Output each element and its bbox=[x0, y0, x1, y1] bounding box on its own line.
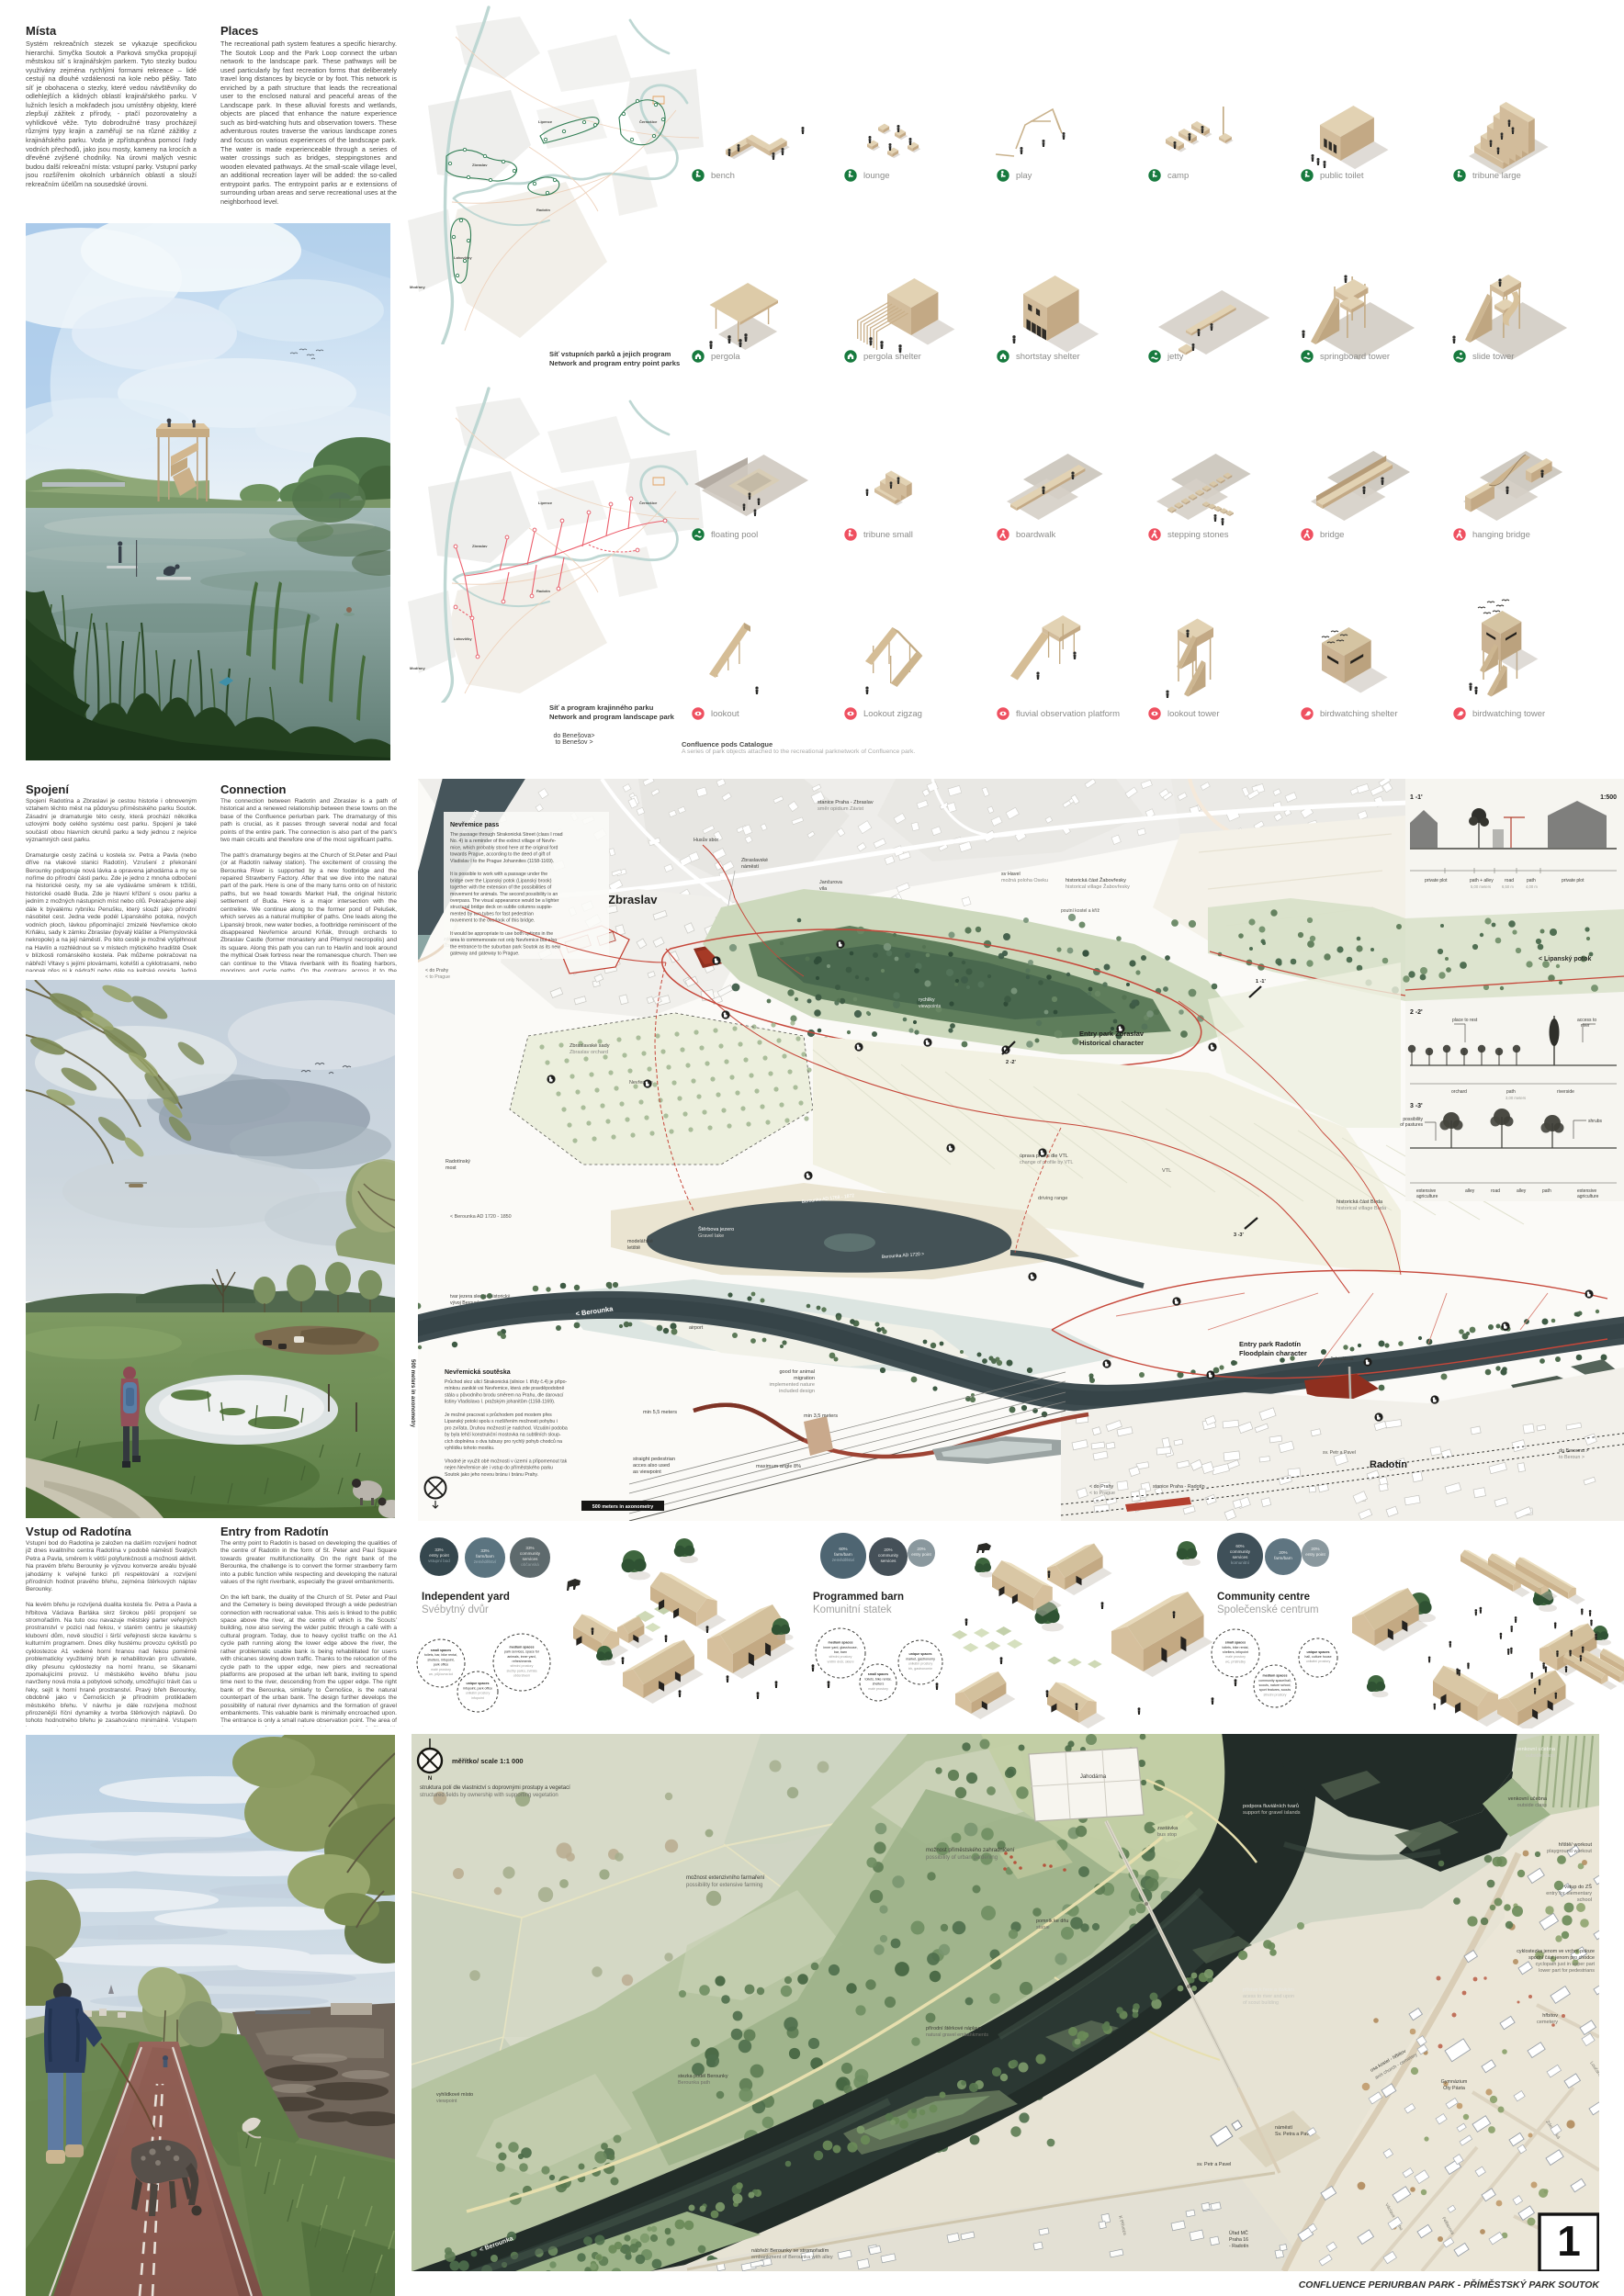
svg-text:pro zvířata. Druhou možností j: pro zvířata. Druhou možností je nadchod.… bbox=[445, 1425, 568, 1431]
svg-text:Je možné pracovat s průchodem: Je možné pracovat s průchodem pod mostem… bbox=[445, 1412, 552, 1418]
svg-text:No. 4) is a reminder of the ex: No. 4) is a reminder of the extinct vill… bbox=[450, 838, 557, 844]
svg-text:The passage through Strakonick: The passage through Strakonická Street (… bbox=[450, 832, 563, 838]
svg-text:Praha 16: Praha 16 bbox=[1229, 2237, 1248, 2243]
svg-text:Gravel lake: Gravel lake bbox=[698, 1233, 724, 1239]
svg-text:nejen Nevřemice ale i vstup do: nejen Nevřemice ale i vstup do příměstsk… bbox=[445, 1466, 553, 1471]
svg-text:min 3,5 meters: min 3,5 meters bbox=[804, 1413, 838, 1419]
svg-text:entry point: entry point bbox=[911, 1552, 931, 1557]
svg-text:acess to river and upon: acess to river and upon bbox=[1243, 1994, 1294, 1999]
svg-text:Komunitní statek: Komunitní statek bbox=[813, 1604, 892, 1615]
svg-text:change of profile by VTL: change of profile by VTL bbox=[1020, 1160, 1073, 1165]
svg-text:services: services bbox=[523, 1557, 539, 1561]
svg-text:malé prostory: malé prostory bbox=[431, 1668, 451, 1671]
svg-text:animals, inner yard,: animals, inner yard, bbox=[507, 1655, 536, 1659]
svg-text:road: road bbox=[1505, 878, 1514, 884]
svg-text:cyclopath just in upper part: cyclopath just in upper part bbox=[1536, 1962, 1596, 1967]
svg-text:implemented nature: implemented nature bbox=[770, 1382, 815, 1388]
svg-text:natural gravel embankments: natural gravel embankments bbox=[926, 2032, 988, 2038]
svg-text:birdwatching shelter: birdwatching shelter bbox=[1320, 709, 1398, 719]
svg-text:springboard tower: springboard tower bbox=[1320, 352, 1390, 362]
svg-text:5,00 meters: 5,00 meters bbox=[1471, 884, 1491, 889]
svg-text:2 -2': 2 -2' bbox=[1006, 1060, 1016, 1065]
svg-text:community: community bbox=[878, 1553, 899, 1558]
svg-text:outside class: outside class bbox=[1526, 1753, 1556, 1759]
svg-text:Úřad MČ: Úřad MČ bbox=[1229, 2230, 1248, 2236]
svg-text:pergola shelter: pergola shelter bbox=[863, 352, 921, 362]
svg-text:20%: 20% bbox=[1279, 1550, 1287, 1555]
svg-text:Entry park Zbraslav: Entry park Zbraslav bbox=[1079, 1030, 1145, 1038]
svg-text:možnost extenzivního farmaření: možnost extenzivního farmaření bbox=[686, 1875, 765, 1881]
svg-text:sv. Petr a Pavel: sv. Petr a Pavel bbox=[1323, 1450, 1356, 1456]
svg-text:možnost příměstského zahradnič: možnost příměstského zahradničení bbox=[926, 1848, 1015, 1853]
svg-text:private plot: private plot bbox=[1425, 878, 1448, 884]
svg-text:movement for animals. The seco: movement for animals. The second possibi… bbox=[450, 892, 558, 897]
svg-text:přírodní štěrkové náplavy: přírodní štěrkové náplavy bbox=[926, 2026, 982, 2032]
svg-text:Soutok jako jeho novou bránu i: Soutok jako jeho novou bránu i bránu Pra… bbox=[445, 1472, 538, 1478]
svg-text:riverside: riverside bbox=[1557, 1089, 1574, 1095]
svg-text:historical village Žabovřesky: historical village Žabovřesky bbox=[1066, 883, 1130, 890]
svg-text:venkovní učebna: venkovní učebna bbox=[1508, 1796, 1548, 1802]
svg-text:path: path bbox=[1527, 878, 1536, 884]
svg-text:33%: 33% bbox=[480, 1548, 489, 1553]
svg-text:náměstí: náměstí bbox=[741, 864, 760, 870]
svg-text:driving range: driving range bbox=[1038, 1196, 1067, 1201]
svg-text:embankment of Berounka with al: embankment of Berounka with alley bbox=[751, 2255, 833, 2260]
svg-text:viewpoints: viewpoints bbox=[919, 1004, 942, 1009]
svg-text:Lipence: Lipence bbox=[538, 119, 553, 124]
svg-text:přístup k řece a lávkám: přístup k řece a lávkám bbox=[1243, 1987, 1294, 1993]
svg-text:Radotínský: Radotínský bbox=[445, 1159, 470, 1165]
svg-text:33%: 33% bbox=[434, 1548, 443, 1552]
svg-text:Jančurova: Jančurova bbox=[819, 880, 842, 885]
svg-text:stanice Praha - Radotín: stanice Praha - Radotín bbox=[1153, 1484, 1205, 1490]
svg-text:Společenské centrum: Společenské centrum bbox=[1217, 1604, 1319, 1615]
svg-text:mínkou zaniklé vsi Nevřemice,: mínkou zaniklé vsi Nevřemice, která zde … bbox=[445, 1386, 564, 1391]
svg-text:entry for elementary: entry for elementary bbox=[1546, 1891, 1592, 1896]
svg-text:< do Prahy: < do Prahy bbox=[425, 968, 449, 974]
svg-text:good for animal: good for animal bbox=[779, 1369, 815, 1375]
svg-text:unique spaces: unique spaces bbox=[467, 1682, 490, 1685]
svg-text:vstupní bod: vstupní bod bbox=[428, 1559, 450, 1563]
svg-text:It is possible to work with a: It is possible to work with a passage un… bbox=[450, 872, 547, 877]
svg-text:listiny Vladislava I. pražským: listiny Vladislava I. pražským johanitům… bbox=[445, 1399, 555, 1405]
svg-text:Černošice: Černošice bbox=[639, 119, 658, 124]
svg-text:zemědělství: zemědělství bbox=[474, 1559, 497, 1564]
svg-text:play: play bbox=[1016, 171, 1032, 181]
svg-text:20%: 20% bbox=[917, 1547, 925, 1551]
svg-text:20%: 20% bbox=[884, 1548, 892, 1552]
svg-text:Independent yard: Independent yard bbox=[422, 1592, 510, 1603]
svg-text:structured fields by ownership: structured fields by ownership with supp… bbox=[420, 1793, 558, 1798]
svg-text:community: community bbox=[1230, 1549, 1251, 1554]
svg-text:shrubs: shrubs bbox=[1588, 1119, 1603, 1124]
svg-text:services: services bbox=[1233, 1555, 1249, 1559]
svg-text:to Beroun >: to Beroun > bbox=[1559, 1455, 1585, 1460]
svg-text:toilets, bike rental,: toilets, bike rental, bbox=[865, 1677, 892, 1681]
svg-text:lounge: lounge bbox=[863, 171, 890, 181]
svg-text:pomník ke dňu: pomník ke dňu bbox=[1036, 1919, 1068, 1924]
svg-text:struktura polí dle vlastnictví: struktura polí dle vlastnictví s doprovn… bbox=[420, 1785, 570, 1791]
svg-text:historická část Žabovřesky: historická část Žabovřesky bbox=[1066, 876, 1126, 884]
svg-text:stála u původního brodu směrem: stála u původního brodu směrem na Prahu,… bbox=[445, 1391, 564, 1398]
svg-text:1: 1 bbox=[1557, 2217, 1581, 2265]
svg-text:alley: alley bbox=[1465, 1188, 1475, 1194]
svg-text:inner yard, glasshouse,: inner yard, glasshouse, bbox=[823, 1646, 857, 1649]
svg-text:20%: 20% bbox=[1311, 1547, 1319, 1551]
svg-text:toilets, bike rental,: toilets, bike rental, bbox=[1223, 1646, 1249, 1649]
svg-text:sv. Petr a Pavel: sv. Petr a Pavel bbox=[1197, 2162, 1231, 2167]
svg-text:toilets, bar, bike rental,: toilets, bar, bike rental, bbox=[424, 1653, 457, 1657]
svg-text:Zbraslav: Zbraslav bbox=[608, 893, 658, 906]
svg-text:historická část Buda: historická část Buda bbox=[1336, 1199, 1383, 1205]
svg-text:hřiště/ workout: hřiště/ workout bbox=[1559, 1842, 1593, 1848]
svg-text:It would be appropriate to use: It would be appropriate to use both opti… bbox=[450, 931, 553, 937]
svg-text:market, gastronomy: market, gastronomy bbox=[906, 1657, 935, 1660]
svg-text:Průchod skrz ulicí Strakonická: Průchod skrz ulicí Strakonická (silnice … bbox=[445, 1379, 567, 1385]
svg-text:Programmed barn: Programmed barn bbox=[813, 1592, 904, 1603]
svg-text:agriculture: agriculture bbox=[1416, 1194, 1438, 1199]
svg-text:Zbraslavské: Zbraslavské bbox=[741, 858, 768, 863]
svg-text:small spaces: small spaces bbox=[868, 1672, 888, 1676]
svg-text:podpora fluviálních tvarů: podpora fluviálních tvarů bbox=[1243, 1803, 1299, 1809]
svg-text:VTL: VTL bbox=[1162, 1168, 1171, 1174]
svg-text:tribune small: tribune small bbox=[863, 530, 913, 540]
svg-text:unikátní prostory: unikátní prostory bbox=[908, 1662, 933, 1666]
svg-text:cích doplněna o dva tubusy pro: cích doplněna o dva tubusy pro rychlý po… bbox=[445, 1438, 562, 1445]
svg-text:lower part for pedestrians: lower part for pedestrians bbox=[1539, 1968, 1595, 1974]
svg-text:4,00 m: 4,00 m bbox=[1526, 884, 1538, 889]
svg-text:vyhlídkové místo: vyhlídkové místo bbox=[436, 2092, 473, 2098]
svg-text:entry point: entry point bbox=[429, 1553, 449, 1558]
svg-text:area to commemorate not only N: area to commemorate not only Nevřemice b… bbox=[450, 938, 557, 943]
svg-text:Jahodárna: Jahodárna bbox=[1080, 1774, 1107, 1780]
svg-text:stanice Praha - Zbraslav: stanice Praha - Zbraslav bbox=[818, 800, 874, 805]
svg-text:orchard: orchard bbox=[1451, 1089, 1467, 1095]
svg-text:road: road bbox=[1491, 1188, 1500, 1194]
svg-text:wc, půjčovna kol: wc, půjčovna kol bbox=[429, 1672, 454, 1676]
svg-text:by byla lehčí konstrukční most: by byla lehčí konstrukční mostovka na su… bbox=[445, 1433, 561, 1438]
svg-text:path: path bbox=[1542, 1188, 1551, 1194]
svg-text:Community centre: Community centre bbox=[1217, 1592, 1310, 1603]
svg-text:sv Havel: sv Havel bbox=[1001, 872, 1021, 877]
svg-text:vstup do ZŠ: vstup do ZŠ bbox=[1564, 1884, 1592, 1890]
svg-text:Zbraslav orchard: Zbraslav orchard bbox=[570, 1050, 608, 1055]
svg-text:hall, culture house: hall, culture house bbox=[1304, 1655, 1331, 1659]
svg-text:nábřeží Berounky se stromořadí: nábřeží Berounky se stromořadím bbox=[751, 2248, 829, 2254]
svg-text:movement to the overlook of th: movement to the overlook of this bridge. bbox=[450, 918, 535, 924]
svg-text:maximum angle 8%: maximum angle 8% bbox=[756, 1464, 801, 1469]
svg-text:min 5,5 meters: min 5,5 meters bbox=[643, 1410, 677, 1415]
svg-text:střední prostory: střední prostory bbox=[511, 1664, 534, 1668]
svg-text:modelářské: modelářské bbox=[627, 1239, 653, 1244]
svg-text:Zbraslavské sady: Zbraslavské sady bbox=[570, 1043, 610, 1049]
svg-text:structural bridge deck on subt: structural bridge deck on subtle columns… bbox=[450, 905, 553, 910]
svg-text:viewpoint: viewpoint bbox=[436, 2099, 457, 2104]
svg-text:place to rest: place to rest bbox=[1452, 1018, 1478, 1023]
svg-text:Vladislav I to the Prague Joha: Vladislav I to the Prague Johannites (11… bbox=[450, 859, 554, 864]
svg-text:mented by two tubes for fast p: mented by two tubes for fast pedestrian bbox=[450, 911, 534, 917]
svg-text:farm/barn: farm/barn bbox=[476, 1554, 494, 1559]
svg-text:overpass. The visual appearanc: overpass. The visual appearance would be… bbox=[450, 898, 559, 904]
svg-text:Radotín: Radotín bbox=[1370, 1459, 1407, 1470]
svg-text:Berounka path: Berounka path bbox=[678, 2080, 710, 2086]
svg-text:vnitřní dvůr, sklení: vnitřní dvůr, sklení bbox=[828, 1660, 854, 1663]
svg-text:path: path bbox=[1506, 1089, 1516, 1095]
svg-text:3 -3': 3 -3' bbox=[1234, 1232, 1244, 1238]
svg-text:bus stop: bus stop bbox=[1157, 1832, 1177, 1838]
svg-text:Zbraslav: Zbraslav bbox=[472, 163, 488, 167]
svg-text:shelters, infopoint,: shelters, infopoint, bbox=[427, 1658, 454, 1661]
svg-text:Floodplain character: Floodplain character bbox=[1239, 1349, 1307, 1357]
svg-text:33%: 33% bbox=[525, 1546, 534, 1550]
svg-text:infopoint: infopoint bbox=[471, 1696, 484, 1700]
svg-text:Sv. Petra a Pavla: Sv. Petra a Pavla bbox=[1275, 2132, 1313, 2137]
svg-text:camp: camp bbox=[1167, 171, 1189, 181]
svg-text:floating pool: floating pool bbox=[711, 530, 758, 540]
svg-text:< do Prahy: < do Prahy bbox=[1089, 1484, 1114, 1490]
svg-text:rychlíky: rychlíky bbox=[919, 997, 935, 1003]
svg-text:birdwatching tower: birdwatching tower bbox=[1472, 709, 1545, 719]
svg-text:Štěrbova jezero: Štěrbova jezero bbox=[698, 1226, 734, 1232]
svg-text:agriculture: agriculture bbox=[1577, 1194, 1599, 1199]
svg-text:farm/barn: farm/barn bbox=[1274, 1556, 1292, 1560]
svg-text:infopoint, park office: infopoint, park office bbox=[463, 1686, 492, 1690]
svg-text:trh, gastronomie: trh, gastronomie bbox=[908, 1667, 932, 1671]
svg-text:bench: bench bbox=[711, 171, 735, 181]
svg-text:Nevřemická soutěska: Nevřemická soutěska bbox=[445, 1369, 511, 1376]
svg-text:support for gravel islands: support for gravel islands bbox=[1243, 1810, 1301, 1816]
svg-text:stepping stones: stepping stones bbox=[1167, 530, 1229, 540]
svg-text:medium spaces: medium spaces bbox=[510, 1645, 535, 1649]
svg-text:náměstí: náměstí bbox=[1275, 2125, 1293, 2131]
svg-text:6,50 m: 6,50 m bbox=[1502, 884, 1514, 889]
svg-text:bridge: bridge bbox=[1320, 530, 1344, 540]
svg-text:občerstvení: občerstvení bbox=[513, 1674, 531, 1678]
svg-text:school: school bbox=[1577, 1897, 1592, 1903]
svg-text:malé prostory: malé prostory bbox=[1225, 1655, 1246, 1659]
svg-text:bridge over the Lipanský potok: bridge over the Lipanský potok (Lipanský… bbox=[450, 878, 552, 884]
svg-text:hřbitov: hřbitov bbox=[1542, 2013, 1558, 2019]
svg-text:wc, přístřešky: wc, přístřešky bbox=[1225, 1660, 1246, 1663]
svg-text:60%: 60% bbox=[839, 1547, 847, 1551]
svg-text:towards Prague, according to t: towards Prague, according to the deed of… bbox=[450, 852, 551, 858]
svg-text:unique spaces: unique spaces bbox=[909, 1652, 932, 1656]
svg-text:community space/hall,: community space/hall, bbox=[1258, 1679, 1291, 1683]
svg-text:included design: included design bbox=[779, 1389, 815, 1394]
svg-text:Husův sbor: Husův sbor bbox=[694, 837, 718, 843]
svg-text:1:500: 1:500 bbox=[1600, 794, 1617, 801]
svg-text:statue: statue bbox=[1036, 1925, 1050, 1930]
svg-text:Jahodárna: Jahodárna bbox=[1330, 1356, 1353, 1362]
svg-text:together with the extension of: together with the extension of the possi… bbox=[450, 885, 552, 891]
svg-text:do Berouna >: do Berouna > bbox=[1559, 1448, 1589, 1454]
svg-text:small spaces: small spaces bbox=[431, 1649, 451, 1652]
svg-text:sport features, scouts: sport features, scouts bbox=[1259, 1688, 1291, 1692]
svg-text:služby parku, zvířata: služby parku, zvířata bbox=[507, 1669, 537, 1672]
svg-text:refreshments: refreshments bbox=[513, 1660, 532, 1663]
svg-text:Černošice: Černošice bbox=[639, 501, 658, 505]
svg-text:as viewpoint: as viewpoint bbox=[633, 1469, 661, 1475]
svg-text:boardwalk: boardwalk bbox=[1016, 530, 1056, 540]
svg-text:pergola: pergola bbox=[711, 352, 740, 362]
svg-text:Nevřemice pass: Nevřemice pass bbox=[450, 822, 499, 828]
svg-text:community: community bbox=[520, 1551, 541, 1556]
svg-text:lookout: lookout bbox=[711, 709, 739, 719]
svg-text:Lahovičky: Lahovičky bbox=[454, 255, 472, 260]
svg-text:Lipence: Lipence bbox=[538, 501, 553, 505]
svg-text:2 -2': 2 -2' bbox=[1410, 1009, 1423, 1016]
svg-text:60%: 60% bbox=[1235, 1544, 1244, 1548]
svg-text:< to Prague: < to Prague bbox=[425, 974, 450, 980]
svg-text:shelters: shelters bbox=[873, 1683, 885, 1686]
svg-text:shelters, infopoint: shelters, infopoint bbox=[1223, 1650, 1248, 1654]
svg-text:mice, which probably stood her: mice, which probably stood here at the o… bbox=[450, 845, 558, 850]
svg-text:N: N bbox=[428, 1776, 432, 1782]
svg-text:park office: park office bbox=[434, 1663, 449, 1667]
svg-text:hanging bridge: hanging bridge bbox=[1472, 530, 1530, 540]
svg-text:< Berounka AD 1720 - 1850: < Berounka AD 1720 - 1850 bbox=[450, 1214, 512, 1220]
svg-text:možná poloha Oseku: možná poloha Oseku bbox=[1001, 878, 1048, 884]
svg-text:jetty: jetty bbox=[1167, 352, 1184, 362]
svg-text:river: river bbox=[1581, 1023, 1590, 1029]
svg-text:medium spaces: medium spaces bbox=[1263, 1674, 1288, 1678]
svg-text:services: services bbox=[881, 1559, 897, 1563]
svg-text:malé prostory: malé prostory bbox=[868, 1687, 888, 1691]
svg-text:Oty Pásta: Oty Pásta bbox=[1443, 2086, 1465, 2091]
svg-text:poutní kostel a kříž: poutní kostel a kříž bbox=[1061, 908, 1100, 914]
svg-text:- Radotín: - Radotín bbox=[1229, 2244, 1248, 2249]
svg-text:scouts, nature school,: scouts, nature school, bbox=[1259, 1683, 1291, 1687]
svg-text:small spaces: small spaces bbox=[1225, 1641, 1246, 1645]
svg-text:fluvial observation platform: fluvial observation platform bbox=[1016, 709, 1120, 719]
svg-text:zastávka: zastávka bbox=[1157, 1826, 1179, 1831]
svg-text:most: most bbox=[445, 1165, 457, 1171]
svg-text:acces also used: acces also used bbox=[633, 1463, 670, 1469]
svg-text:Gymnázium: Gymnázium bbox=[1441, 2079, 1468, 2085]
svg-text:vyhlídku tohoto mostku.: vyhlídku tohoto mostku. bbox=[445, 1446, 495, 1451]
svg-text:lookout tower: lookout tower bbox=[1167, 709, 1220, 719]
svg-text:Lookout zigzag: Lookout zigzag bbox=[863, 709, 922, 719]
svg-text:of pastures: of pastures bbox=[1400, 1122, 1423, 1128]
svg-text:Modřany: Modřany bbox=[410, 666, 425, 670]
svg-text:Zbraslav: Zbraslav bbox=[472, 544, 488, 548]
svg-text:Entry park Radotín: Entry park Radotín bbox=[1239, 1340, 1302, 1348]
svg-text:bar, barn: bar, barn bbox=[834, 1650, 847, 1654]
svg-text:migration: migration bbox=[794, 1376, 815, 1381]
svg-text:komunitní: komunitní bbox=[1231, 1560, 1250, 1565]
svg-text:směr opidium Závist: směr opidium Závist bbox=[818, 806, 863, 812]
svg-text:Radotín: Radotín bbox=[536, 589, 550, 593]
svg-text:1 -1': 1 -1' bbox=[1256, 979, 1266, 985]
svg-text:medium spaces: medium spaces bbox=[829, 1641, 853, 1645]
svg-text:unique spaces: unique spaces bbox=[1307, 1650, 1330, 1654]
svg-text:shortstay shelter: shortstay shelter bbox=[1016, 352, 1080, 362]
svg-text:stezka podél Berounky: stezka podél Berounky bbox=[678, 2074, 728, 2079]
svg-text:private plot: private plot bbox=[1562, 878, 1585, 884]
svg-text:alley: alley bbox=[1517, 1188, 1527, 1194]
svg-text:park services, space for: park services, space for bbox=[504, 1650, 540, 1654]
svg-text:public toilet: public toilet bbox=[1320, 171, 1364, 181]
svg-text:farm/barn: farm/barn bbox=[834, 1552, 852, 1557]
svg-text:spodní část jenom pro chodce: spodní část jenom pro chodce bbox=[1528, 1955, 1595, 1961]
svg-text:3 -3': 3 -3' bbox=[1410, 1103, 1423, 1109]
svg-text:Modřany: Modřany bbox=[410, 285, 425, 289]
svg-text:Lipanský potoki spolu s rozšíř: Lipanský potoki spolu s rozšířením možno… bbox=[445, 1419, 558, 1424]
svg-text:the entrance to the suburban p: the entrance to the suburban park Soutok… bbox=[450, 944, 560, 950]
svg-text:tribune large: tribune large bbox=[1472, 171, 1521, 181]
svg-text:střední prostory: střední prostory bbox=[829, 1655, 852, 1659]
svg-text:cemetery: cemetery bbox=[1537, 2020, 1558, 2025]
svg-text:zemědělství: zemědělství bbox=[832, 1558, 855, 1562]
svg-text:občanská: občanská bbox=[521, 1562, 539, 1567]
svg-text:střední prostory: střední prostory bbox=[1264, 1693, 1287, 1696]
svg-text:Radotín: Radotín bbox=[536, 208, 550, 212]
svg-text:Vhodně je využít obě možnosti: Vhodně je využít obě možnosti v území a … bbox=[445, 1458, 568, 1464]
svg-text:Svébytný dvůr: Svébytný dvůr bbox=[422, 1604, 489, 1615]
svg-text:cyklostezka jenom ve vrchní po: cyklostezka jenom ve vrchní poloze bbox=[1517, 1949, 1595, 1954]
svg-text:3,00 meters: 3,00 meters bbox=[1506, 1096, 1526, 1100]
svg-text:of scout building: of scout building bbox=[1243, 2000, 1279, 2006]
svg-text:possibility of urban gardening: possibility of urban gardening bbox=[926, 1855, 998, 1861]
svg-text:měřítko/ scale 1:1 000: měřítko/ scale 1:1 000 bbox=[452, 1757, 524, 1765]
svg-text:playground workout: playground workout bbox=[1547, 1849, 1592, 1854]
svg-text:airport: airport bbox=[689, 1325, 704, 1331]
svg-text:< to Prague: < to Prague bbox=[1089, 1491, 1115, 1496]
svg-text:straight pedestrian: straight pedestrian bbox=[633, 1457, 675, 1462]
svg-text:venkovní učebna: venkovní učebna bbox=[1517, 1747, 1556, 1752]
svg-text:1 -1': 1 -1' bbox=[1410, 794, 1423, 801]
svg-text:entry point: entry point bbox=[1305, 1552, 1325, 1557]
svg-text:Historical character: Historical character bbox=[1079, 1039, 1144, 1047]
svg-text:path + alley: path + alley bbox=[1470, 878, 1494, 884]
svg-text:outside class: outside class bbox=[1517, 1803, 1548, 1808]
svg-text:possibility for extensive farm: possibility for extensive farming bbox=[686, 1883, 762, 1888]
svg-text:< Lipanský potok: < Lipanský potok bbox=[1539, 956, 1591, 962]
svg-text:unikátní prostory: unikátní prostory bbox=[466, 1692, 491, 1695]
svg-text:slide tower: slide tower bbox=[1472, 352, 1514, 362]
svg-text:500 meters in axonometry: 500 meters in axonometry bbox=[592, 1504, 654, 1510]
svg-text:letiště: letiště bbox=[627, 1245, 640, 1251]
svg-text:Lahovičky: Lahovičky bbox=[454, 636, 472, 641]
svg-text:unikátní prostory: unikátní prostory bbox=[1306, 1660, 1331, 1663]
svg-text:gateway and gateway to Prague.: gateway and gateway to Prague. bbox=[450, 951, 520, 957]
